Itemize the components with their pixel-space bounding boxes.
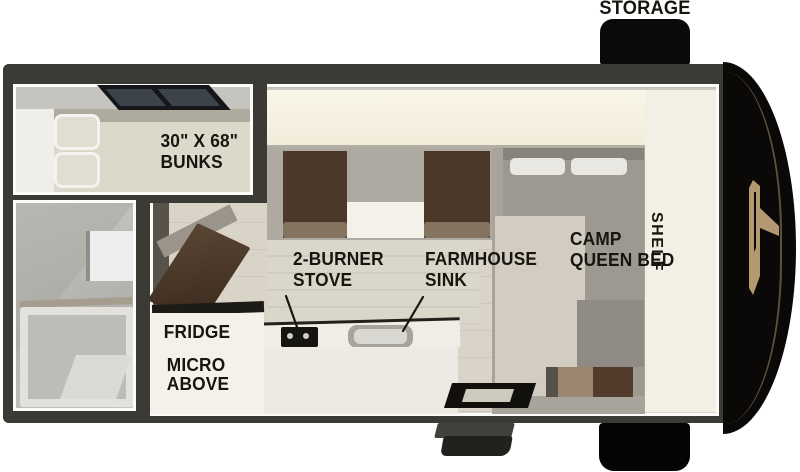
bunks-label: 30" X 68" BUNKS (91, 131, 230, 152)
bunk-bedding (16, 109, 54, 192)
bed-label-line1: CAMP (570, 229, 622, 250)
sink-label-line1: FARMHOUSE (425, 249, 537, 270)
bunks-label-size: 30" X 68" (161, 131, 239, 152)
burner-icon (303, 333, 309, 339)
shelf-label: SHELF (646, 212, 667, 272)
tub-step (60, 355, 132, 399)
sink-basin (354, 329, 407, 344)
dinette-seat-cushion (424, 222, 490, 238)
bed-shadow (577, 300, 644, 367)
exterior-storage-box (600, 19, 690, 65)
dinette-seat-cushion (283, 222, 347, 238)
bunk-pillow (54, 152, 100, 188)
entry-step-well (444, 383, 536, 408)
fridge-label: FRIDGE (164, 322, 250, 343)
bathtub (20, 307, 134, 407)
bed-pillow (510, 158, 565, 175)
brand-logo-icon (745, 180, 779, 295)
stove-label: 2-BURNER STOVE (228, 249, 359, 270)
micro-label-line1: MICRO (167, 356, 226, 375)
wet-bath-room (13, 200, 136, 411)
storage-label: STORAGE (587, 0, 702, 19)
micro-label-line2: ABOVE (167, 375, 229, 394)
bunks-label-word: BUNKS (161, 152, 223, 173)
skylight-pane (105, 89, 166, 106)
floorplan-canvas: STORAGE 30" X 68" BUNKS 2-BURNER STOVE F… (0, 0, 800, 472)
sink-label: FARMHOUSE SINK (358, 249, 492, 270)
overhead-cabinets (267, 90, 704, 148)
two-burner-stove (281, 327, 318, 347)
bed-label: CAMP QUEEN BED (503, 229, 637, 250)
skylight-pane (157, 89, 220, 106)
burner-icon (287, 333, 293, 339)
bed-foot-bench-edge (546, 367, 558, 397)
exterior-bottom-compartment (599, 423, 690, 471)
bed-pillow (571, 158, 627, 175)
stove-label-line2: STOVE (293, 270, 352, 291)
bed-foot-ottoman (593, 367, 633, 397)
step-well-inner (462, 389, 514, 402)
sink-label-line2: SINK (425, 270, 467, 291)
dinette-table (347, 202, 424, 238)
bath-window (86, 231, 133, 281)
counter-front (250, 347, 458, 414)
camper-nose-cap (723, 62, 796, 434)
entry-step-front (440, 436, 513, 456)
bed-foot-bench (558, 367, 593, 397)
micro-label: MICRO ABOVE (167, 356, 253, 375)
skylight-window (97, 85, 231, 110)
farmhouse-sink (348, 325, 413, 348)
